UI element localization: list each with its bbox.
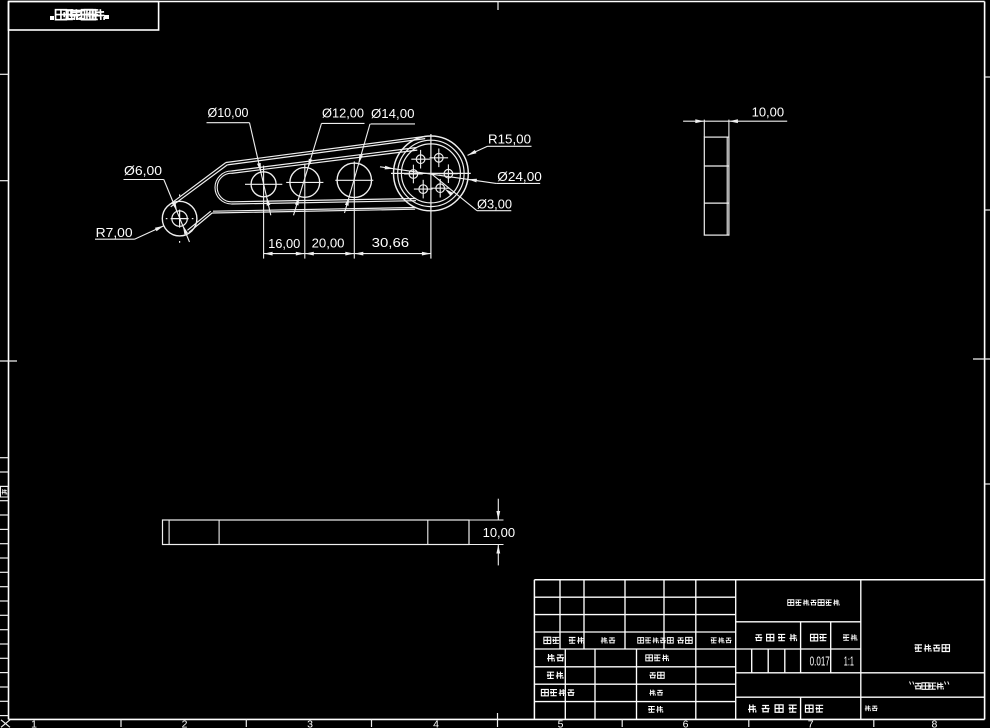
svg-text:1:1: 1:1 xyxy=(844,655,854,669)
svg-text:6: 6 xyxy=(683,719,689,728)
svg-text:R7,00: R7,00 xyxy=(96,225,133,240)
svg-text:1: 1 xyxy=(31,719,37,728)
svg-text:16,00: 16,00 xyxy=(268,236,300,251)
svg-text:10,00: 10,00 xyxy=(752,105,785,120)
svg-text:3: 3 xyxy=(307,719,313,728)
svg-text:Ø3,00: Ø3,00 xyxy=(477,196,512,211)
svg-text:Ø24,00: Ø24,00 xyxy=(497,169,542,184)
svg-text:2: 2 xyxy=(182,719,188,728)
svg-text:Ø10,00: Ø10,00 xyxy=(208,105,249,120)
svg-text:Ø6,00: Ø6,00 xyxy=(124,163,162,178)
svg-text:30,66: 30,66 xyxy=(372,235,409,250)
svg-text:5: 5 xyxy=(558,719,564,728)
svg-text:10,00: 10,00 xyxy=(483,525,515,540)
svg-text:20,00: 20,00 xyxy=(312,236,345,251)
svg-text:8: 8 xyxy=(931,719,937,728)
svg-text:4: 4 xyxy=(433,719,439,728)
svg-text:Ø12,00: Ø12,00 xyxy=(322,106,364,121)
svg-text:Ø14,00: Ø14,00 xyxy=(371,106,415,121)
svg-text:7: 7 xyxy=(808,719,814,728)
svg-text:R15,00: R15,00 xyxy=(488,131,531,146)
svg-text:0.017: 0.017 xyxy=(810,655,830,669)
